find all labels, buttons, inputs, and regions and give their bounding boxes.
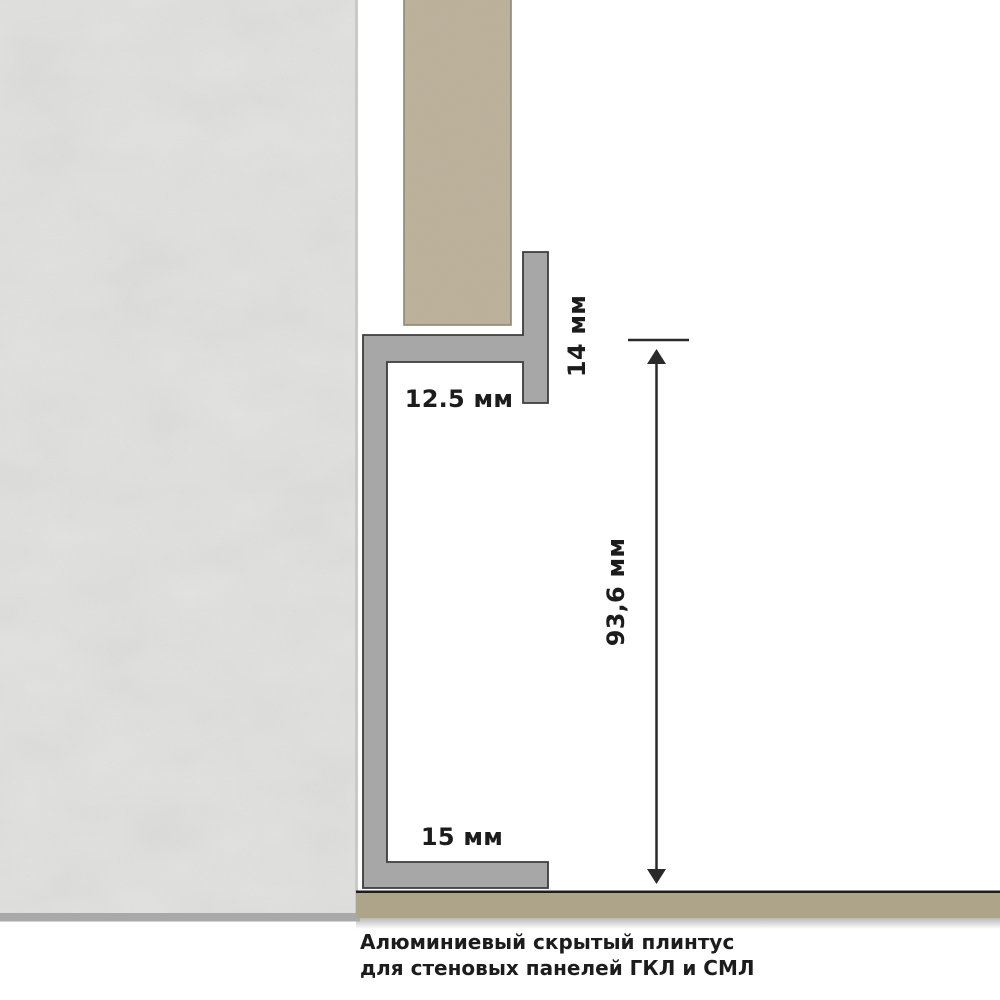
panel-texture [405,0,510,324]
label-flange-height: 14 мм [563,295,591,377]
arrowhead-down-icon [647,869,666,884]
floor-top-line [356,891,1000,894]
drywall-panel [404,0,511,325]
wall-bottom-band [0,913,360,922]
floor-shadow [356,918,1000,929]
diagram-canvas: 14 мм 12.5 мм 93,6 мм 15 мм Алюминиевый … [0,0,1000,1000]
floor-strip [356,893,1000,918]
label-bottom-flange: 15 мм [421,823,503,851]
dimension-total-height [628,340,689,884]
concrete-wall [0,0,360,922]
plinth-profile [363,252,548,888]
wall-texture-speckle [0,0,358,913]
label-panel-thickness: 12.5 мм [405,385,514,413]
label-total-height: 93,6 мм [602,538,630,647]
floor [356,891,1000,930]
caption-line-1: Алюминиевый скрытый плинтус [360,929,755,955]
arrowhead-up-icon [647,349,666,364]
caption-line-2: для стеновых панелей ГКЛ и СМЛ [360,955,755,981]
caption: Алюминиевый скрытый плинтус для стеновых… [360,929,755,981]
wall-right-edge [355,0,358,913]
